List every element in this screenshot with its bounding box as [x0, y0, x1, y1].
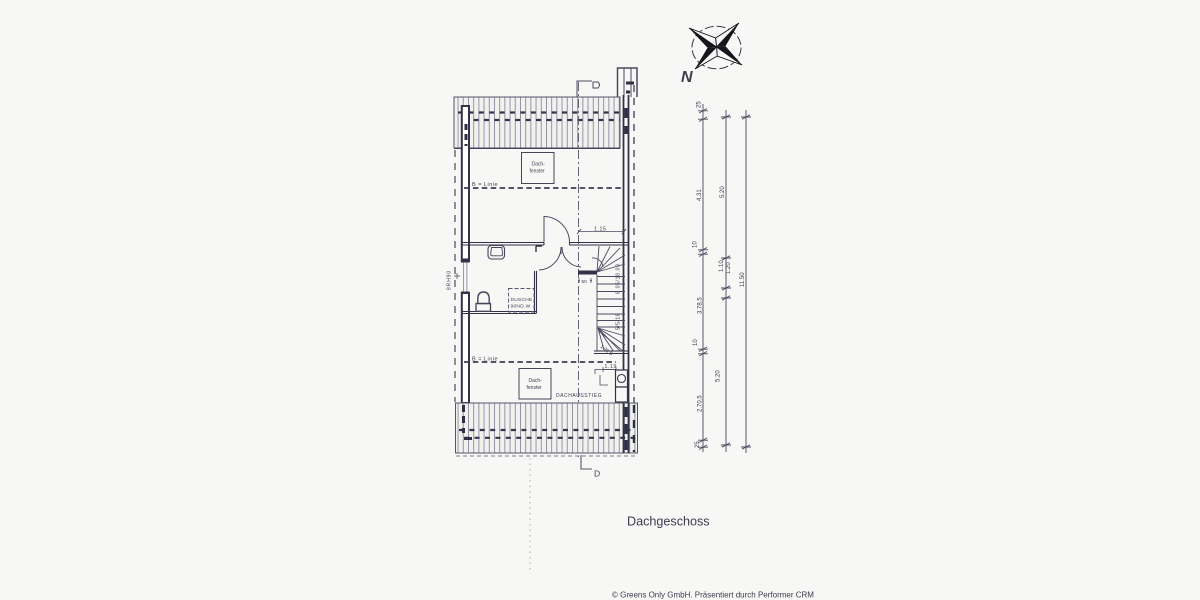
svg-text:1.20: 1.20 [726, 262, 732, 274]
svg-text:Dach-: Dach- [529, 378, 543, 384]
svg-text:5/5/18: 5/5/18 [616, 313, 622, 330]
svg-text:N: N [681, 69, 693, 86]
svg-text:11.50: 11.50 [740, 272, 746, 287]
svg-text:fenster: fenster [530, 169, 546, 175]
svg-text:5.20: 5.20 [720, 186, 726, 198]
svg-text:Dachgeschoss: Dachgeschoss [627, 515, 710, 529]
svg-text:2.70.5: 2.70.5 [698, 395, 704, 412]
svg-text:25: 25 [697, 101, 703, 108]
svg-text:1.15: 1.15 [594, 226, 607, 232]
svg-text:90ND.W: 90ND.W [511, 304, 531, 310]
svg-text:10: 10 [693, 241, 699, 248]
svg-text:8RH90: 8RH90 [447, 270, 453, 290]
svg-text:1.19: 1.19 [605, 364, 618, 370]
svg-text:© Greens Only GmbH. Präsentier: © Greens Only GmbH. Präsentiert durch Pe… [612, 591, 814, 600]
svg-text:1.10: 1.10 [719, 260, 725, 272]
svg-text:D: D [594, 469, 600, 479]
svg-text:4.31: 4.31 [697, 189, 703, 201]
svg-text:50: 50 [582, 279, 588, 285]
svg-text:fenster: fenster [527, 385, 543, 391]
svg-text:10: 10 [693, 339, 699, 346]
svg-text:B = Linie: B = Linie [472, 357, 498, 363]
svg-text:DUSCHE: DUSCHE [511, 297, 533, 303]
svg-text:DACHAUSSTIEG: DACHAUSSTIEG [556, 393, 602, 399]
svg-text:3.78.5: 3.78.5 [698, 297, 704, 314]
svg-text:25: 25 [695, 441, 701, 448]
svg-text:8 05/18.08: 8 05/18.08 [616, 263, 622, 294]
svg-text:Dach-: Dach- [532, 162, 546, 168]
svg-text:5.20: 5.20 [716, 370, 722, 382]
svg-text:B = Linie: B = Linie [472, 182, 498, 188]
